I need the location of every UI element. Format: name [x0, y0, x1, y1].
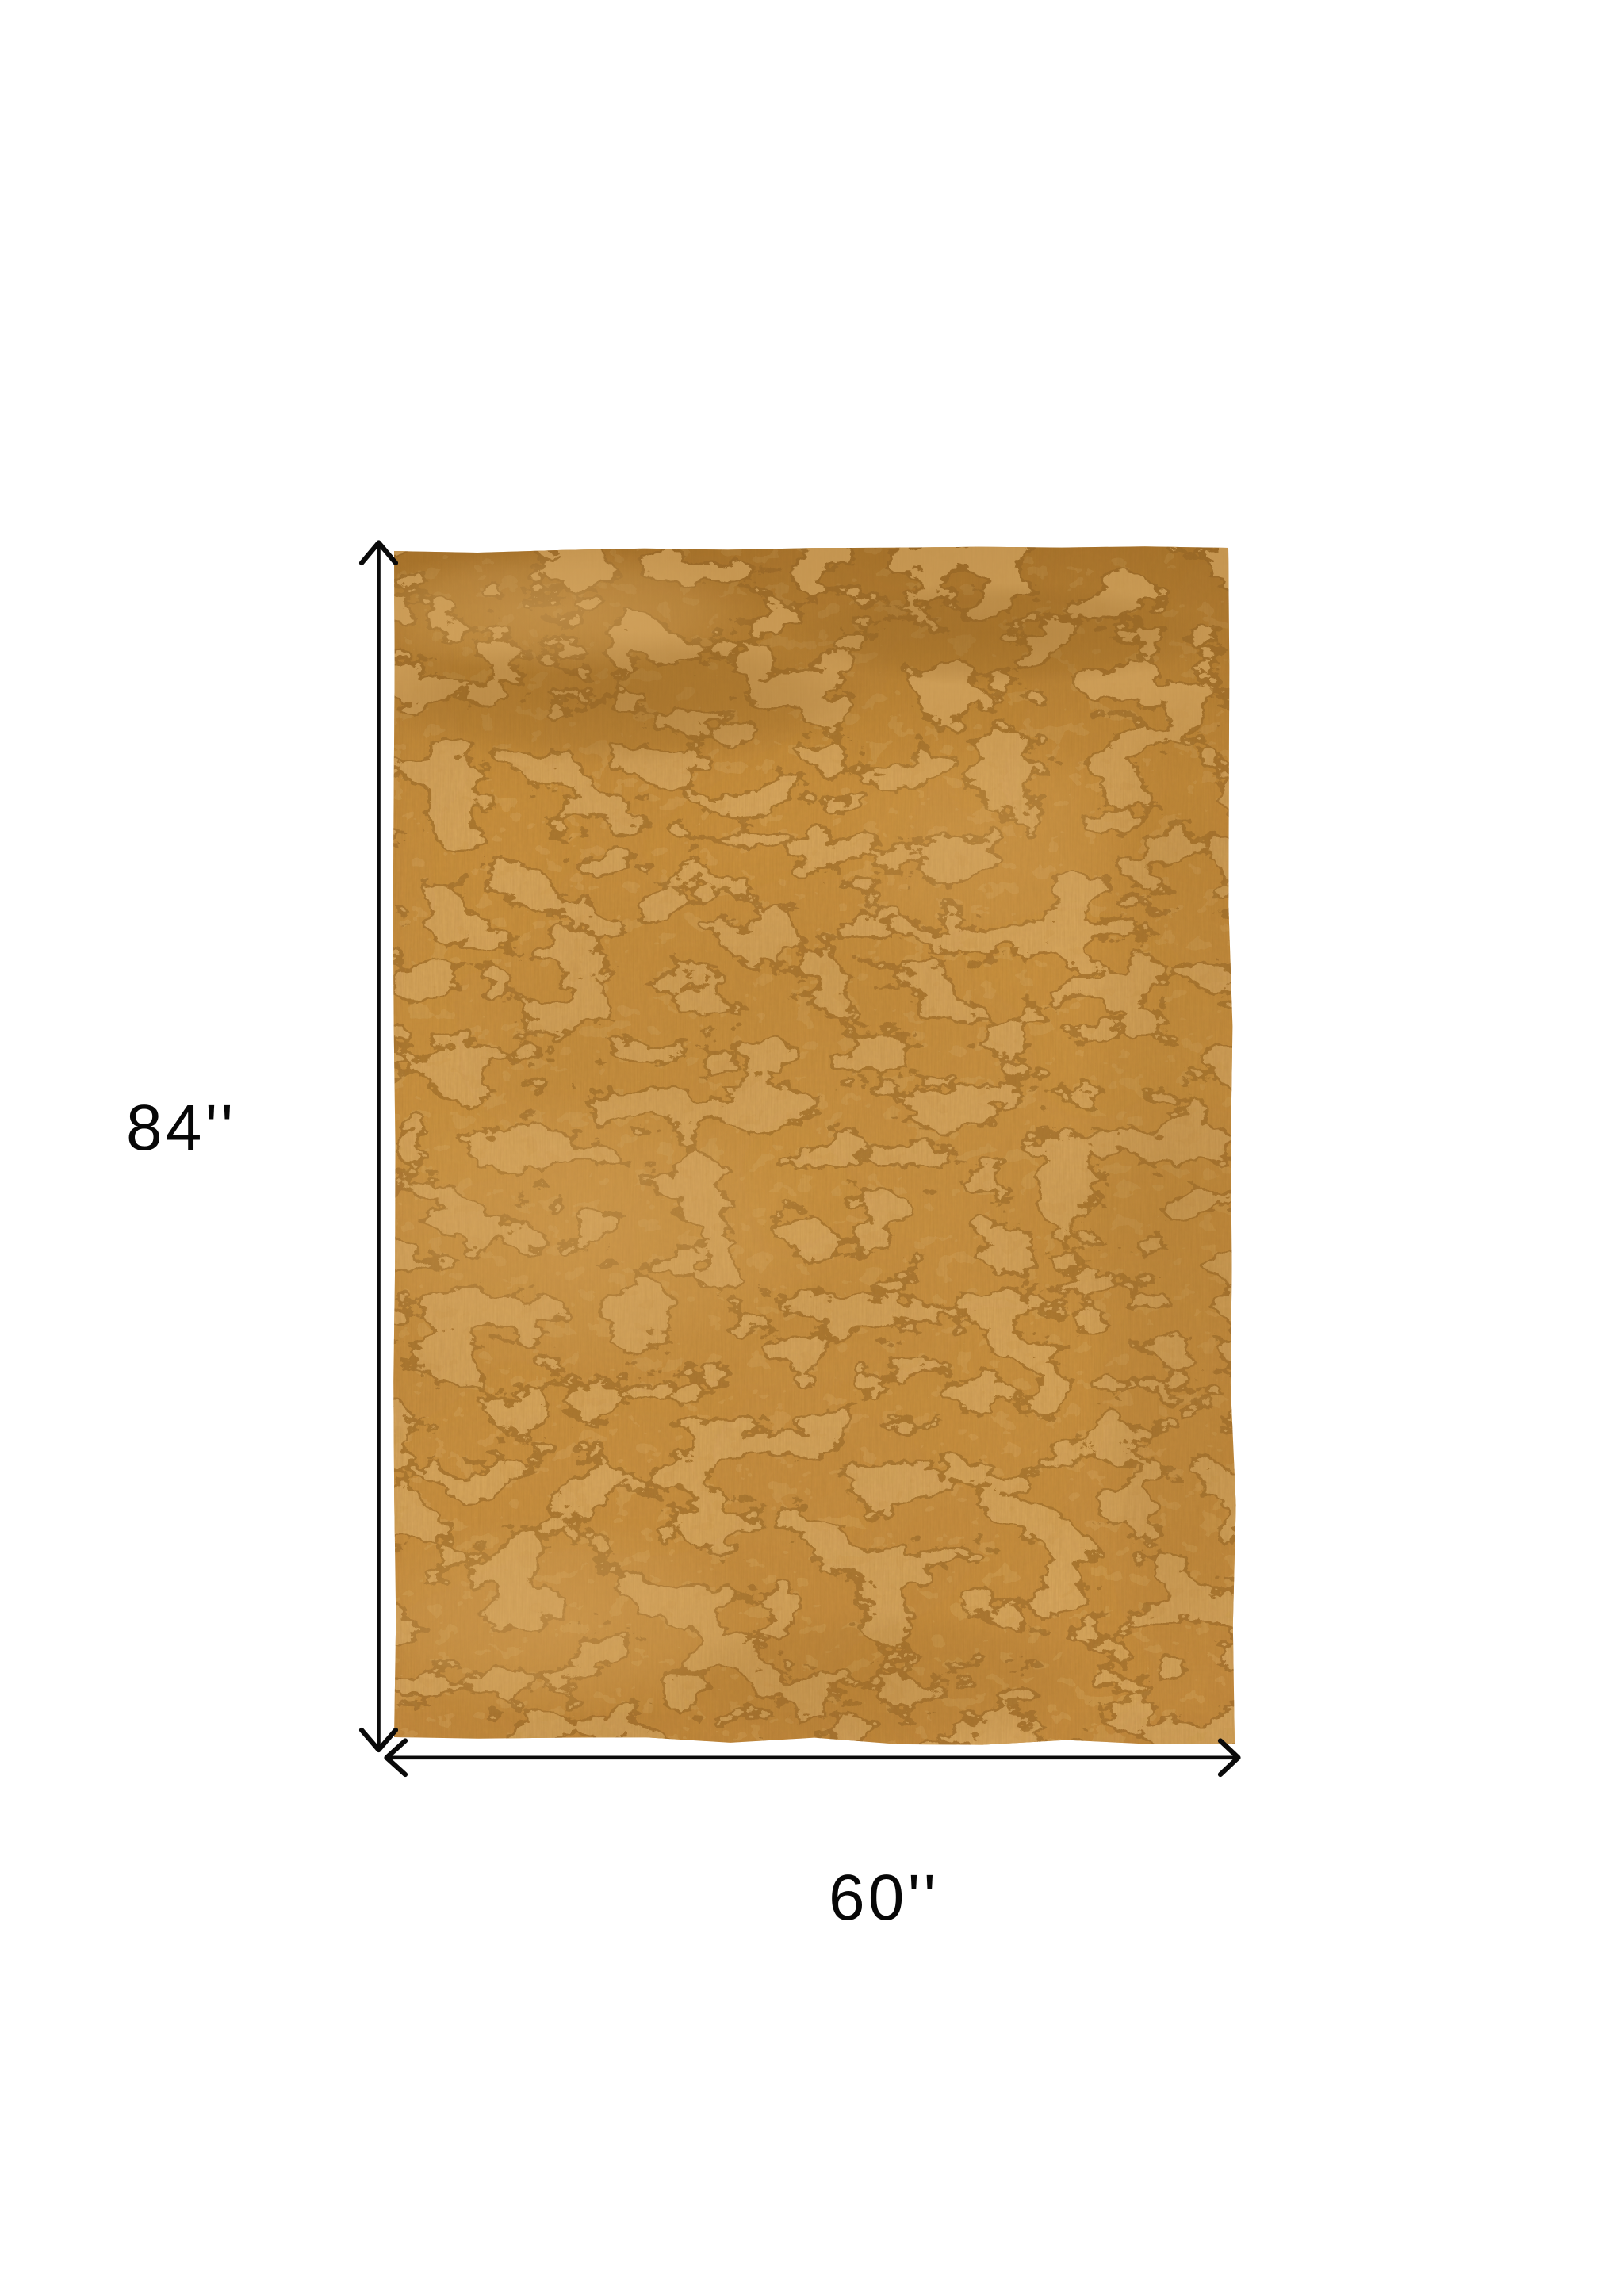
svg-text:60'': 60''	[829, 1862, 939, 1934]
svg-text:84'': 84''	[126, 1092, 236, 1164]
